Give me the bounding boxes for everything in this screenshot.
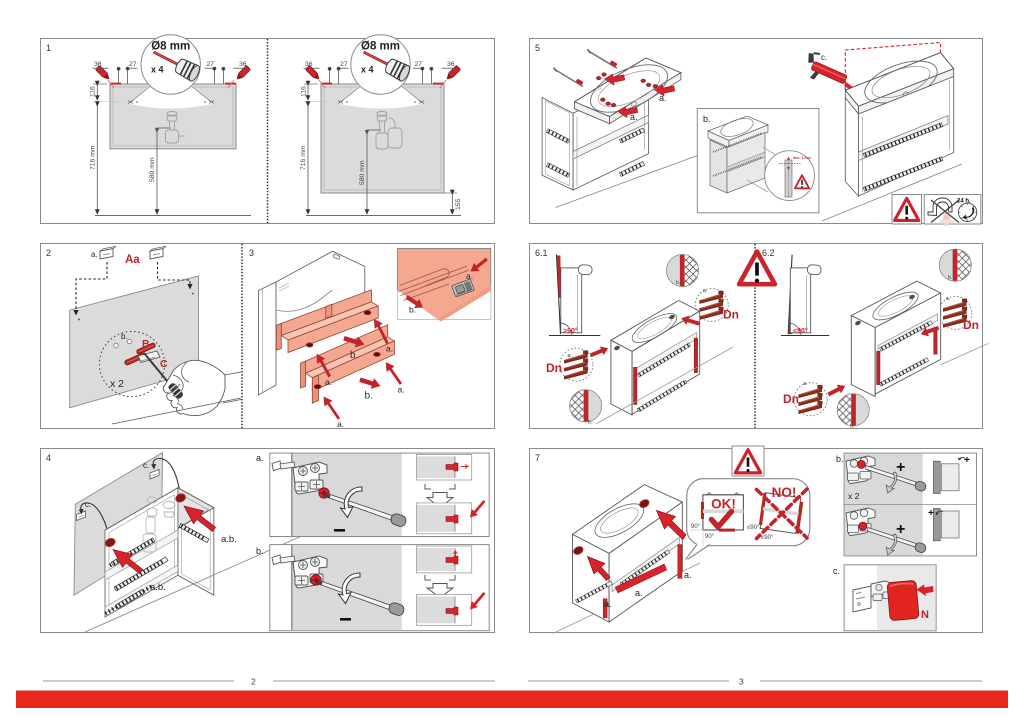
- svg-text:+: +: [896, 521, 905, 538]
- svg-text:2: 2: [46, 248, 51, 258]
- svg-text:a.b.: a.b.: [221, 534, 237, 545]
- svg-text:C: C: [160, 358, 168, 370]
- svg-text:b.: b.: [948, 275, 952, 281]
- svg-text:c.: c.: [143, 461, 149, 470]
- svg-text:36: 36: [239, 61, 247, 68]
- svg-text:x 2: x 2: [110, 378, 124, 390]
- svg-text:116: 116: [301, 86, 308, 97]
- svg-text:c.: c.: [833, 566, 840, 576]
- svg-text:x 4: x 4: [361, 65, 374, 75]
- svg-text:Dn: Dn: [783, 392, 799, 406]
- svg-text:580 mm: 580 mm: [149, 157, 156, 182]
- svg-text:a.: a.: [325, 377, 332, 387]
- svg-text:6.2: 6.2: [762, 248, 775, 258]
- svg-text:5: 5: [535, 43, 540, 53]
- svg-text:a.: a.: [703, 288, 707, 294]
- svg-text:a.: a.: [635, 588, 643, 598]
- svg-text:27: 27: [340, 61, 348, 68]
- svg-text:a.b.: a.b.: [150, 582, 166, 593]
- svg-text:6.1: 6.1: [535, 248, 548, 258]
- svg-text:27: 27: [207, 61, 215, 68]
- svg-text:a.: a.: [684, 570, 692, 580]
- svg-text:155: 155: [455, 198, 462, 210]
- svg-text:N: N: [921, 609, 929, 621]
- svg-text:90°: 90°: [691, 524, 701, 530]
- svg-text:3: 3: [739, 677, 744, 687]
- svg-text:B: B: [142, 338, 150, 350]
- svg-text:b.: b.: [409, 305, 416, 315]
- svg-text:min. 1 mm: min. 1 mm: [793, 156, 811, 160]
- svg-text:1: 1: [46, 43, 51, 53]
- svg-text:27: 27: [129, 61, 137, 68]
- svg-text:a.: a.: [466, 271, 473, 281]
- svg-text:580 mm: 580 mm: [359, 160, 366, 185]
- svg-text:2: 2: [251, 677, 256, 687]
- svg-text:3: 3: [249, 248, 254, 258]
- svg-text:b.: b.: [850, 424, 854, 430]
- svg-text:Dn: Dn: [723, 308, 739, 322]
- svg-text:a.: a.: [398, 385, 405, 395]
- svg-text:>90°: >90°: [563, 327, 578, 335]
- svg-text:b.: b.: [676, 280, 680, 286]
- svg-text:x 2: x 2: [848, 491, 860, 501]
- svg-text:a.: a.: [604, 599, 612, 609]
- svg-text:b.: b.: [588, 420, 592, 426]
- svg-text:NO!: NO!: [772, 485, 797, 500]
- svg-text:x 4: x 4: [151, 65, 164, 75]
- svg-text:116: 116: [90, 86, 97, 97]
- svg-text:c.: c.: [821, 53, 827, 62]
- svg-text:a.: a.: [630, 112, 638, 122]
- svg-text:+: +: [896, 459, 905, 476]
- svg-text:a.: a.: [256, 453, 264, 463]
- svg-text:c.: c.: [85, 500, 91, 509]
- svg-text:b.: b.: [703, 114, 711, 124]
- svg-text:a.: a.: [568, 353, 572, 359]
- svg-text:<90°: <90°: [793, 327, 808, 335]
- svg-text:b.: b.: [256, 546, 264, 556]
- svg-text:a.: a.: [91, 250, 98, 259]
- svg-text:36: 36: [305, 61, 313, 68]
- svg-text:b.: b.: [365, 391, 373, 402]
- svg-text:Dn: Dn: [546, 361, 562, 375]
- svg-text:Ø8 mm: Ø8 mm: [361, 41, 400, 53]
- svg-text:a.: a.: [659, 93, 667, 103]
- svg-text:≤90°: ≤90°: [761, 535, 774, 541]
- svg-text:b.: b.: [121, 332, 128, 341]
- svg-text:a.: a.: [337, 419, 344, 429]
- svg-text:≤90°: ≤90°: [747, 525, 760, 531]
- svg-text:Ø8 mm: Ø8 mm: [151, 41, 190, 53]
- svg-text:4: 4: [46, 453, 51, 463]
- svg-text:716 mm: 716 mm: [300, 145, 307, 170]
- svg-text:90°: 90°: [705, 534, 715, 540]
- svg-text:+: +: [928, 508, 934, 519]
- svg-text:b.: b.: [836, 454, 844, 464]
- svg-text:a.: a.: [803, 381, 807, 387]
- svg-text:7: 7: [535, 453, 540, 463]
- svg-text:27: 27: [415, 61, 423, 68]
- svg-text:36: 36: [94, 61, 102, 68]
- svg-text:36: 36: [447, 61, 455, 68]
- svg-text:a.: a.: [946, 296, 950, 302]
- svg-text:+: +: [964, 455, 970, 466]
- svg-text:716 mm: 716 mm: [90, 145, 97, 170]
- svg-text:Dn: Dn: [963, 318, 979, 332]
- svg-text:Aa: Aa: [125, 254, 140, 266]
- svg-text:a.: a.: [386, 344, 393, 354]
- svg-text:b.: b.: [350, 350, 358, 361]
